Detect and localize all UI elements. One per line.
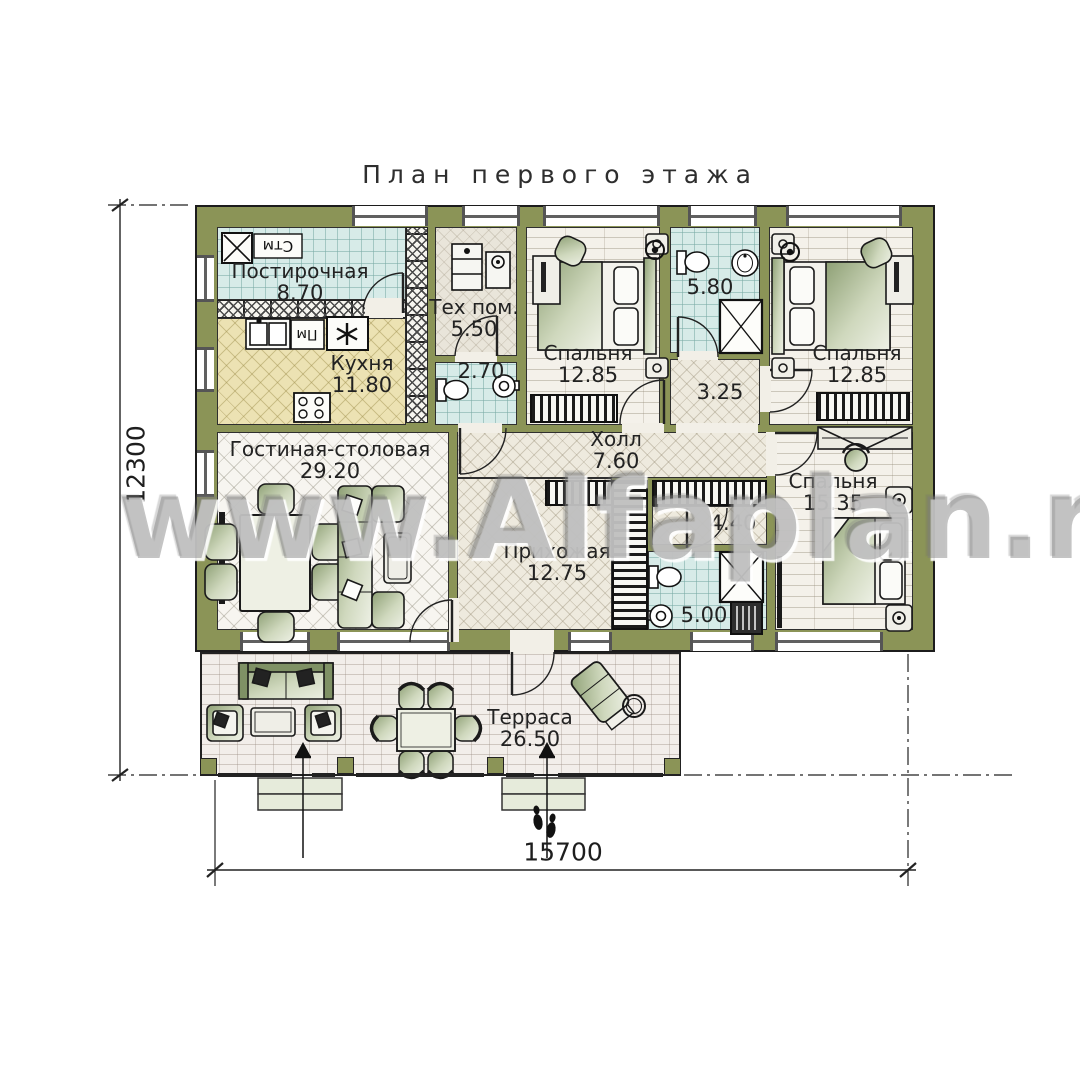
washer-label: Стм [263,237,294,255]
terrace-post-3 [487,757,504,774]
terrace-post-4 [664,758,681,775]
terrace-post-1 [200,758,217,775]
label-bath2: 5.00 [681,604,728,627]
label-bedroom1: Спальня12.85 [544,342,633,387]
window-top-3 [543,206,660,226]
window-top-2 [462,206,520,226]
window-bottom-3 [568,632,612,651]
window-bottom-1 [240,632,310,651]
label-lobby: 3.25 [697,381,744,404]
bedroom1-wardrobe [530,394,618,423]
label-kitchen: Кухня11.80 [331,352,394,397]
label-terrace: Терраса26.50 [487,706,572,751]
label-bath1: 5.80 [687,276,734,299]
laundry-cabinet-column [406,227,428,423]
window-bottom-4 [690,632,754,651]
window-top-1 [352,206,428,226]
terrace-deck [200,652,681,776]
dimension-width: 15700 [523,838,603,867]
floor-plan-page: { "title": "План первого этажа", "waterm… [0,0,1080,1080]
label-bedroom2: Спальня12.85 [813,342,902,387]
window-bottom-2 [337,632,450,651]
watermark: www.Alfaplan.ru [118,455,1080,585]
page-title: План первого этажа [362,160,758,189]
entry-steps [258,778,585,810]
label-tech: Тех пом.5.50 [429,296,518,341]
terrace-post-2 [337,757,354,774]
window-bottom-5 [775,632,883,651]
dishwasher-label: Пм [296,326,317,342]
bedroom2-wardrobe [816,392,910,421]
window-left-2 [197,347,214,392]
window-top-4 [688,206,757,226]
footprints-icon [532,805,557,839]
label-wc: 2.70 [458,360,505,383]
window-top-5 [786,206,902,226]
window-left-1 [197,255,214,302]
label-laundry: Постирочная8.70 [231,260,368,305]
